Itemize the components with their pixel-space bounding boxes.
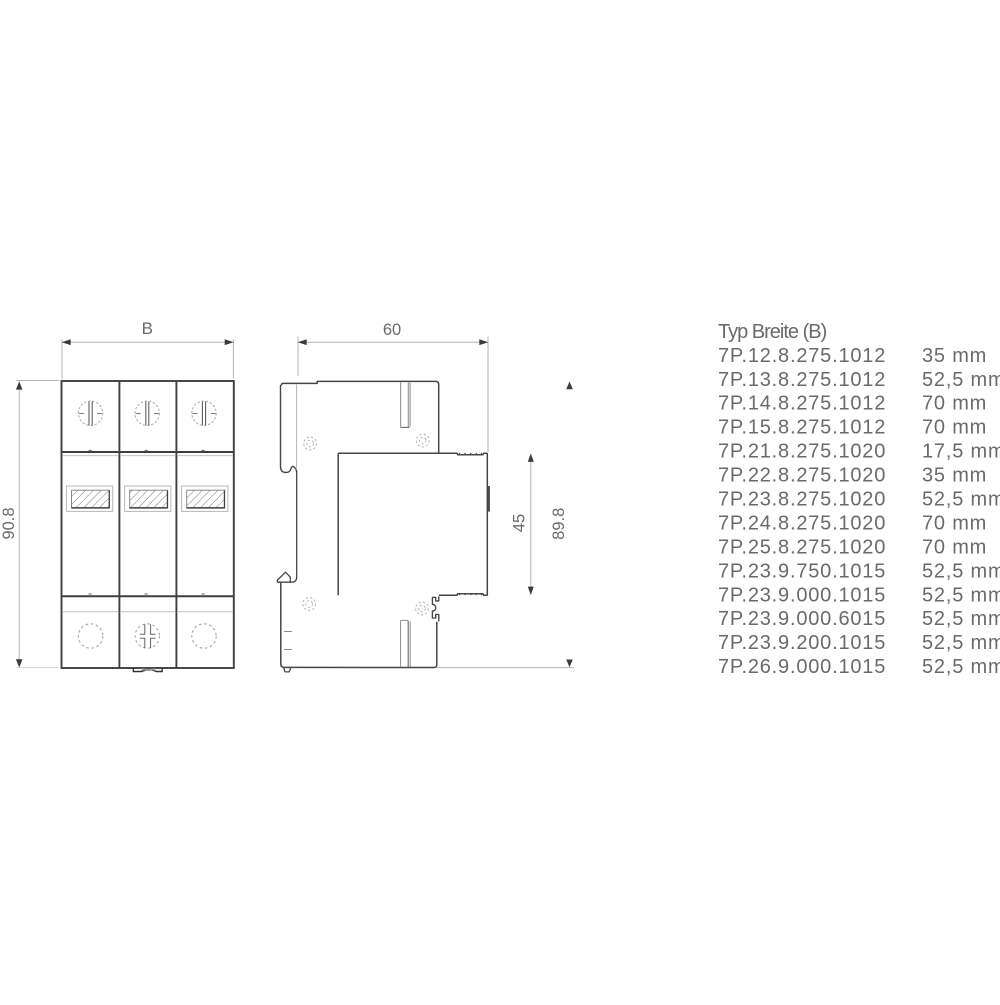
svg-text:89.8: 89.8 [550,508,568,540]
svg-text:7P.23.9.750.1015: 7P.23.9.750.1015 [718,560,886,582]
svg-text:70 mm: 70 mm [922,536,987,558]
svg-text:52,5 mm: 52,5 mm [922,489,1000,511]
svg-text:B: B [142,319,153,338]
svg-text:52,5 mm: 52,5 mm [922,608,1000,630]
svg-text:7P.14.8.275.1012: 7P.14.8.275.1012 [718,393,886,415]
svg-text:7P.25.8.275.1020: 7P.25.8.275.1020 [718,536,886,558]
svg-text:7P.26.9.000.1015: 7P.26.9.000.1015 [718,656,886,678]
svg-text:70 mm: 70 mm [922,513,987,535]
svg-text:35 mm: 35 mm [922,465,987,487]
svg-text:7P.12.8.275.1012: 7P.12.8.275.1012 [718,345,886,367]
svg-text:7P.22.8.275.1020: 7P.22.8.275.1020 [718,465,886,487]
svg-text:7P.23.9.000.1015: 7P.23.9.000.1015 [718,584,886,606]
svg-text:45: 45 [511,514,529,532]
svg-text:52,5 mm: 52,5 mm [922,369,1000,391]
svg-text:52,5 mm: 52,5 mm [922,656,1000,678]
svg-text:70 mm: 70 mm [922,417,987,439]
svg-text:70 mm: 70 mm [922,393,987,415]
svg-text:7P.13.8.275.1012: 7P.13.8.275.1012 [718,369,886,391]
svg-text:17,5 mm: 17,5 mm [922,441,1000,463]
svg-text:52,5 mm: 52,5 mm [922,560,1000,582]
svg-text:35 mm: 35 mm [922,345,987,367]
svg-text:90.8: 90.8 [0,507,18,539]
svg-text:52,5 mm: 52,5 mm [922,584,1000,606]
svg-text:7P.15.8.275.1012: 7P.15.8.275.1012 [718,417,886,439]
svg-text:7P.23.8.275.1020: 7P.23.8.275.1020 [718,489,886,511]
svg-text:7P.23.9.000.6015: 7P.23.9.000.6015 [718,608,886,630]
svg-text:60: 60 [383,321,401,339]
svg-text:Typ Breite (B): Typ Breite (B) [718,321,827,343]
svg-text:7P.24.8.275.1020: 7P.24.8.275.1020 [718,513,886,535]
svg-text:7P.23.9.200.1015: 7P.23.9.200.1015 [718,632,886,654]
svg-text:7P.21.8.275.1020: 7P.21.8.275.1020 [718,441,886,463]
svg-text:52,5 mm: 52,5 mm [922,632,1000,654]
